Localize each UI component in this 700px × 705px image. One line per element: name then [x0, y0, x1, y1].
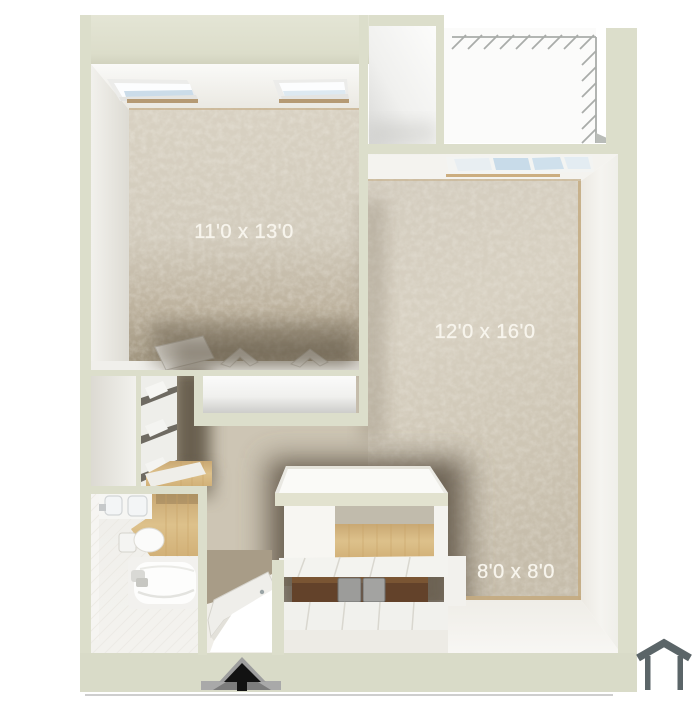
svg-text:8'0 x 8'0: 8'0 x 8'0 — [477, 561, 555, 583]
svg-text:11'0 x 13'0: 11'0 x 13'0 — [194, 221, 294, 243]
svg-text:12'0 x 16'0: 12'0 x 16'0 — [435, 321, 536, 343]
